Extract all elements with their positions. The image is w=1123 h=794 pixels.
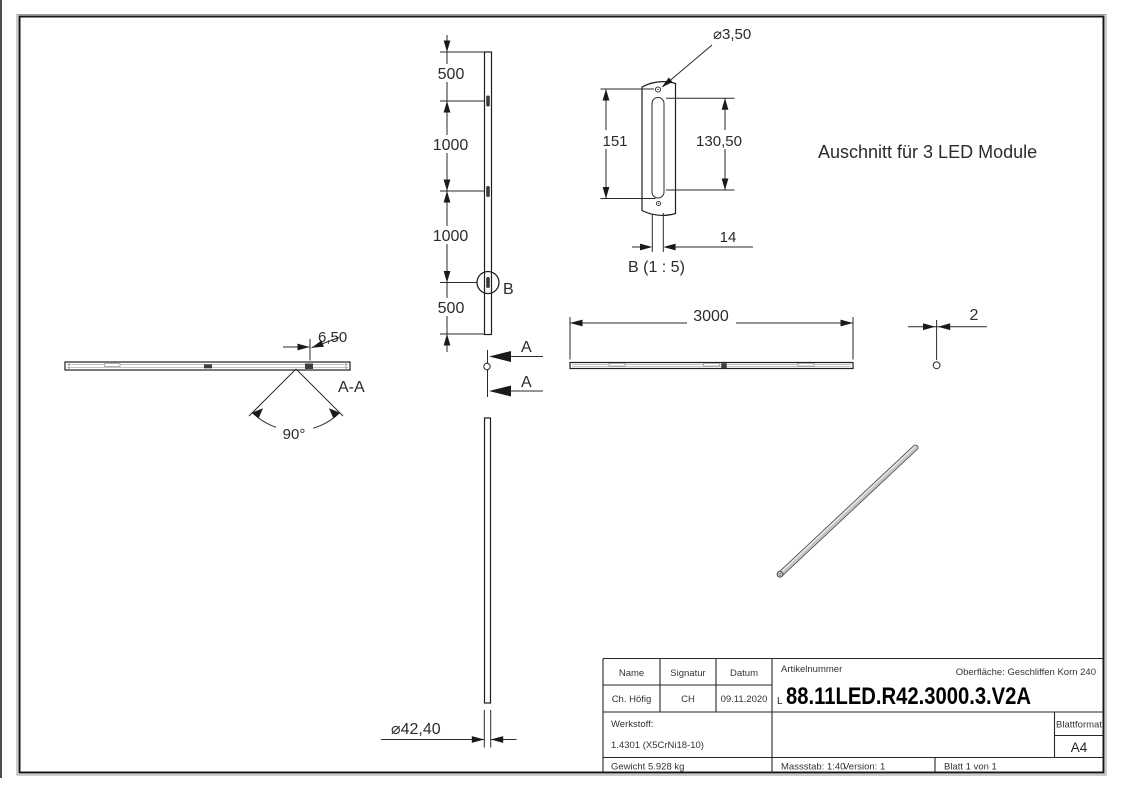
tb-oberflaeche: Oberfläche: Geschliffen Korn 240	[956, 667, 1096, 678]
annotation-note: Auschnitt für 3 LED Module	[818, 142, 1037, 162]
tb-massstab: Massstab: 1:40	[781, 762, 845, 773]
dim-2-text: 2	[970, 307, 979, 324]
dim-hole-diameter: ⌀3,50	[713, 26, 751, 43]
dim-1000-upper: 1000	[433, 137, 469, 154]
led-cutout-slot	[652, 98, 664, 199]
dim-151: 151	[602, 133, 627, 150]
dim-42-40-text: ⌀42,40	[391, 721, 441, 738]
tb-blattformat-value: A4	[1071, 740, 1088, 755]
tb-name-label: Name	[619, 668, 644, 679]
tube-side-outline	[485, 418, 491, 703]
section-label-a-bottom: A	[521, 374, 532, 391]
dim-500-top: 500	[438, 66, 465, 83]
tb-signatur-value: CH	[681, 694, 695, 705]
dim-130-50: 130,50	[696, 133, 742, 150]
detail-b-marker-label: B	[503, 281, 514, 298]
dim-14: 14	[720, 229, 737, 246]
tb-artikelnummer-prefix: L	[777, 696, 783, 707]
tb-artikelnummer-label: Artikelnummer	[781, 664, 842, 675]
detail-b-caption: B (1 : 5)	[628, 259, 685, 276]
dim-500-bottom: 500	[438, 300, 465, 317]
dim-90deg-text: 90°	[283, 426, 306, 443]
tb-werkstoff-value: 1.4301 (X5CrNi18-10)	[611, 740, 704, 751]
window-left-edge	[0, 0, 2, 778]
section-aa-caption: A-A	[338, 379, 365, 396]
tb-datum-label: Datum	[730, 668, 758, 679]
tube-end-circle	[933, 362, 940, 369]
tb-werkstoff-label: Werkstoff:	[611, 719, 653, 730]
dim-1000-lower: 1000	[433, 228, 469, 245]
tb-name-value: Ch. Höfig	[612, 694, 652, 705]
tb-blattformat-label: Blattformat	[1056, 720, 1102, 731]
tb-artikelnummer-value: 88.11LED.R42.3000.3.V2A	[786, 683, 1031, 710]
tb-gewicht: Gewicht 5.928 kg	[611, 762, 684, 773]
tb-version: Version: 1	[843, 762, 885, 773]
tb-signatur-label: Signatur	[670, 668, 705, 679]
drawing-frame	[17, 15, 1106, 776]
dim-3000-text: 3000	[693, 308, 729, 325]
section-label-a-top: A	[521, 339, 532, 356]
dim-6-50-text: 6,50	[318, 329, 347, 346]
cad-drawing-sheet: 500 1000 1000 500 B A A	[0, 0, 1123, 794]
tb-datum-value: 09.11.2020	[721, 694, 768, 705]
tb-blatt: Blatt 1 von 1	[944, 762, 997, 773]
